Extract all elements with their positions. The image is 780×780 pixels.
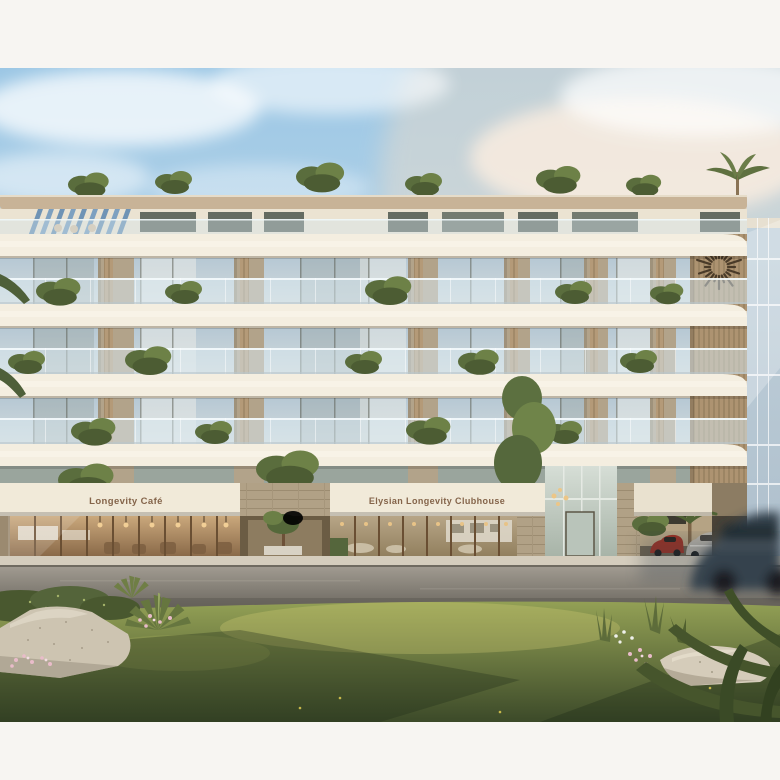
roof-parapet <box>0 195 747 259</box>
cafe-storefront <box>0 516 240 556</box>
bottom-whitespace <box>0 722 780 780</box>
top-whitespace <box>0 0 780 68</box>
clubhouse-storefront <box>330 516 517 556</box>
clubhouse-sign: Elysian Longevity Clubhouse <box>369 496 505 506</box>
main-entrance <box>545 466 617 556</box>
scene-canvas: Longevity Café Elysian Longevity Clubhou… <box>0 68 780 722</box>
lobby-entrance <box>240 483 330 556</box>
building-facade: Longevity Café Elysian Longevity Clubhou… <box>0 152 780 559</box>
cafe-sign: Longevity Café <box>89 496 163 507</box>
glass-tower-right <box>747 218 780 556</box>
balcony-slabs <box>0 304 747 469</box>
architectural-rendering: Longevity Café Elysian Longevity Clubhou… <box>0 0 780 780</box>
